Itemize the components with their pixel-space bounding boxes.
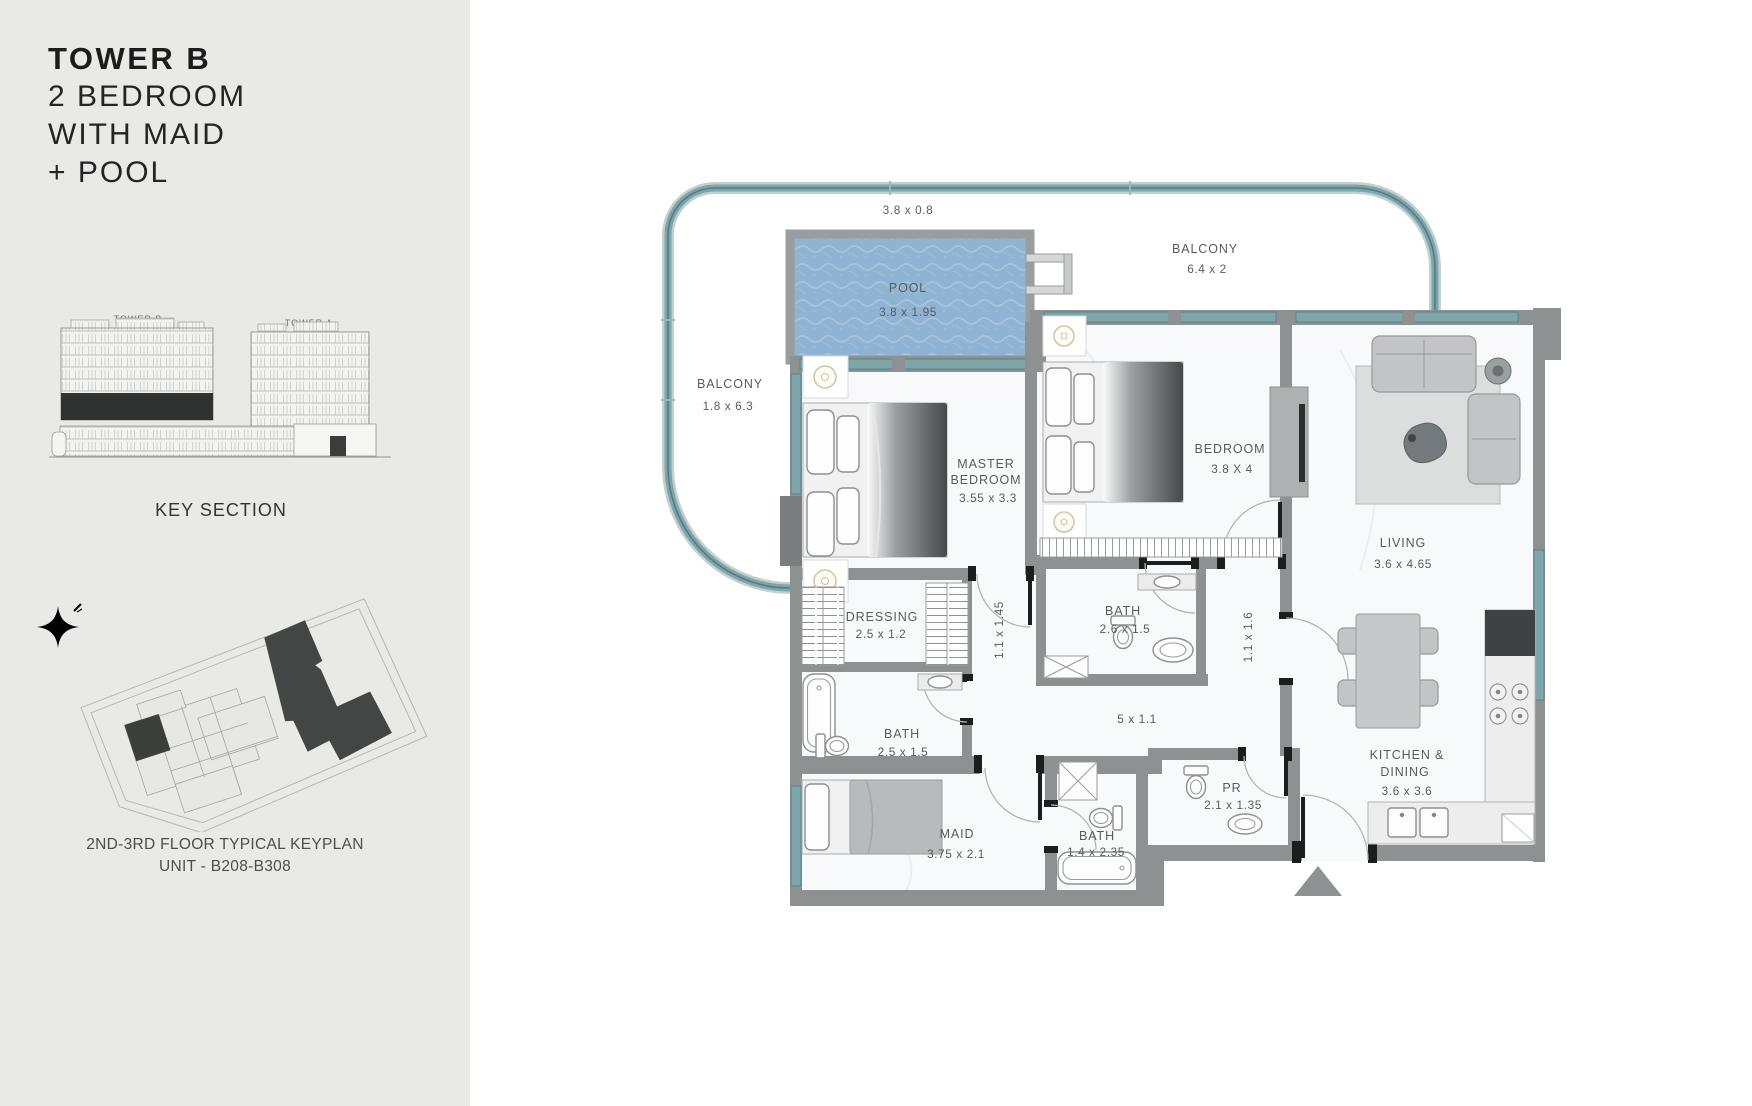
- corner-unit: [1502, 814, 1534, 842]
- label-pool-dims: 3.8 x 1.95: [879, 305, 937, 319]
- title-pool: + POOL: [48, 154, 246, 192]
- label-maid-bath-dims: 1.4 x 2.35: [1067, 845, 1125, 859]
- label-kitchen-1: KITCHEN &: [1370, 748, 1445, 762]
- label-pr: PR: [1222, 781, 1241, 795]
- label-kitchen-dims: 3.6 x 3.6: [1382, 784, 1433, 798]
- tower-a-footprint: [257, 605, 395, 772]
- label-pr-dims: 2.1 x 1.35: [1204, 798, 1262, 812]
- label-master-bath: BATH: [884, 727, 920, 741]
- title-maid: WITH MAID: [48, 116, 246, 154]
- label-master-bedroom-1: MASTER: [957, 457, 1015, 471]
- label-bedroom: BEDROOM: [1195, 442, 1266, 456]
- title-bedrooms: 2 BEDROOM: [48, 78, 246, 116]
- label-kitchen-2: DINING: [1380, 765, 1429, 779]
- bedroom-bed: [1043, 362, 1183, 502]
- label-bedroom-dims: 3.8 X 4: [1211, 462, 1253, 476]
- maid-bed: [802, 780, 942, 854]
- page-title: TOWER B 2 BEDROOM WITH MAID + POOL: [48, 40, 246, 192]
- label-balcony-top-dims: 3.8 x 0.8: [883, 203, 934, 217]
- coffee-table: [1404, 423, 1446, 462]
- sofa: [1372, 336, 1476, 392]
- key-section-image: TOWER B TOWER A: [46, 296, 396, 481]
- highlighted-floor-band: [61, 393, 213, 420]
- sidebar: TOWER B 2 BEDROOM WITH MAID + POOL TOWER…: [0, 0, 470, 1106]
- label-dressing: DRESSING: [846, 610, 919, 624]
- floor-plan: 3.8 x 0.8 POOL 3.8 x 1.95 BALCONY 6.4 x …: [640, 150, 1600, 970]
- key-section-caption: KEY SECTION: [46, 500, 396, 521]
- label-corridor-a-dims: 1.1 x 1.45: [992, 601, 1006, 659]
- label-maid-bath: BATH: [1079, 829, 1115, 843]
- keyplan-image: [52, 592, 462, 832]
- label-corridor-b-dims: 1.1 x 1.6: [1241, 612, 1255, 663]
- keyplan-caption-line2: UNIT - B208-B308: [30, 856, 420, 878]
- label-pool: POOL: [889, 281, 927, 295]
- tower-a-elevation: [251, 322, 369, 426]
- master-bed: [803, 403, 947, 557]
- tower-b-elevation: [61, 318, 213, 420]
- keyplan-caption: 2ND-3RD FLOOR TYPICAL KEYPLAN UNIT - B20…: [30, 834, 420, 878]
- podium-elevation: [49, 424, 391, 457]
- sofa-chaise: [1468, 394, 1520, 484]
- title-tower: TOWER B: [48, 40, 246, 78]
- label-balcony-right-dims: 6.4 x 2: [1187, 262, 1227, 276]
- label-master-bedroom-dims: 3.55 x 3.3: [959, 491, 1017, 505]
- label-bath-dims: 2.6 x 1.5: [1100, 622, 1151, 636]
- label-living-dims: 3.6 x 4.65: [1374, 557, 1432, 571]
- keyplan-caption-line1: 2ND-3RD FLOOR TYPICAL KEYPLAN: [30, 834, 420, 856]
- dining-table: [1356, 614, 1420, 728]
- label-dressing-dims: 2.5 x 1.2: [856, 627, 907, 641]
- bedroom-closet-hatch: [1040, 538, 1282, 557]
- label-living: LIVING: [1380, 536, 1426, 550]
- label-maid-dims: 3.75 x 2.1: [927, 847, 985, 861]
- label-maid: MAID: [940, 827, 975, 841]
- kitchen-hob: [1485, 610, 1535, 656]
- label-master-bedroom-2: BEDROOM: [951, 473, 1022, 487]
- label-balcony-left-dims: 1.8 x 6.3: [703, 399, 754, 413]
- plant: [1485, 358, 1511, 384]
- label-balcony-right: BALCONY: [1172, 242, 1238, 256]
- entrance-arrow-icon: [1294, 866, 1342, 896]
- label-hallway-dims: 5 x 1.1: [1117, 712, 1157, 726]
- tv-console: [1270, 387, 1308, 497]
- label-master-bath-dims: 2.5 x 1.5: [878, 745, 929, 759]
- label-balcony-left: BALCONY: [697, 377, 763, 391]
- label-bath: BATH: [1105, 604, 1141, 618]
